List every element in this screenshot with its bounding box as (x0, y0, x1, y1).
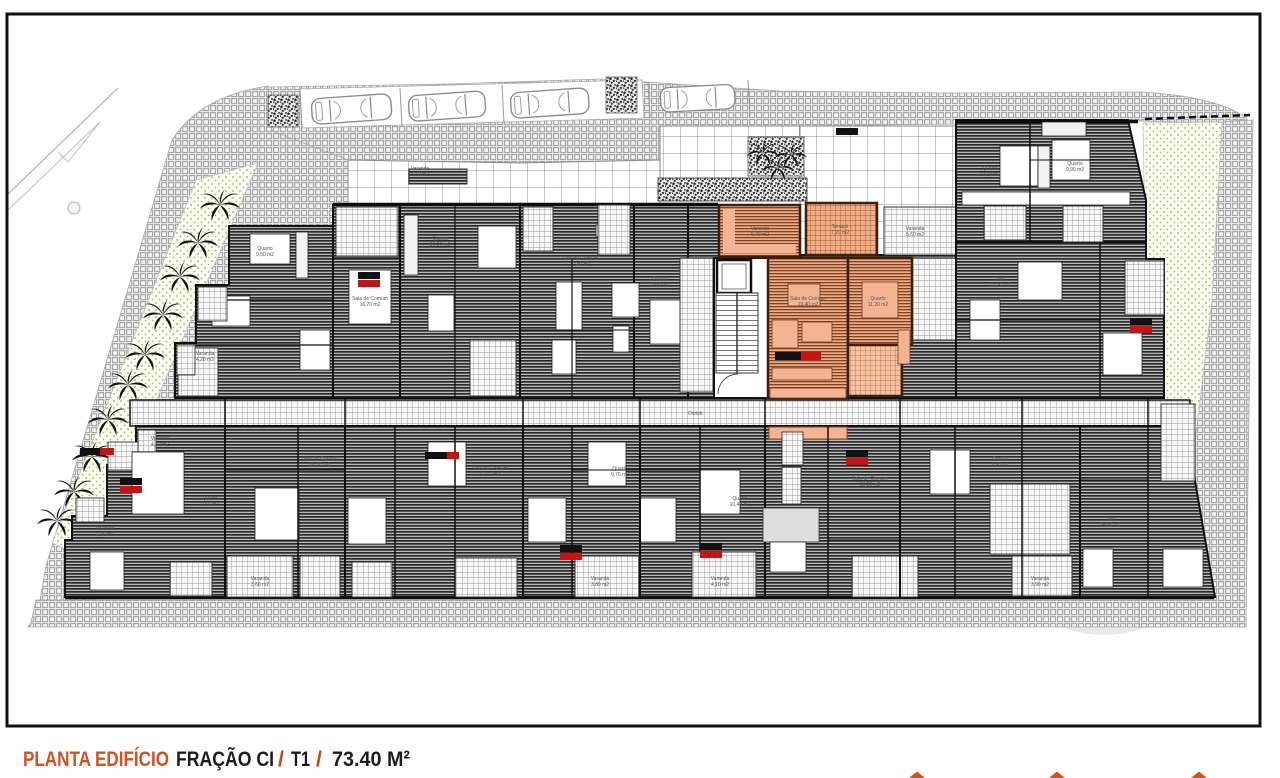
svg-text:4,20 m2: 4,20 m2 (196, 357, 214, 363)
svg-text:9,90 m2: 9,90 m2 (1066, 167, 1084, 173)
svg-text:10,20 m2: 10,20 m2 (430, 242, 451, 248)
svg-text:4,10 m2: 4,10 m2 (711, 582, 729, 588)
svg-text:16,20 m2: 16,20 m2 (310, 462, 331, 468)
svg-text:18,20 m2: 18,20 m2 (860, 482, 881, 488)
svg-text:T1: T1 (291, 747, 310, 771)
svg-text:9,50 m2: 9,50 m2 (256, 252, 274, 258)
svg-text:9,80 m2: 9,80 m2 (651, 282, 669, 288)
svg-text:17,10 m2: 17,10 m2 (480, 472, 501, 478)
svg-text:5,10 m2: 5,10 m2 (411, 172, 429, 178)
svg-text:3,60 m2: 3,60 m2 (251, 582, 269, 588)
svg-text:4,60 m2: 4,60 m2 (151, 442, 169, 448)
svg-text:11,20 m2: 11,20 m2 (868, 302, 889, 308)
svg-text:10,10 m2: 10,10 m2 (980, 172, 1001, 178)
svg-text:9,60 m2: 9,60 m2 (201, 502, 219, 508)
svg-text:19,40 m2: 19,40 m2 (798, 302, 819, 308)
svg-text:3,80 m2: 3,80 m2 (591, 582, 609, 588)
svg-text:15,30 m2: 15,30 m2 (990, 282, 1011, 288)
svg-text:4,30 m2: 4,30 m2 (96, 532, 114, 538)
svg-text:FRAÇÃO CI: FRAÇÃO CI (176, 746, 274, 771)
svg-text:/: / (278, 747, 284, 771)
svg-text:9,90 m2: 9,90 m2 (991, 462, 1009, 468)
svg-text:Distrib.: Distrib. (688, 411, 704, 417)
svg-text:9,70 m2: 9,70 m2 (611, 472, 629, 478)
svg-text:6,40 m2: 6,40 m2 (751, 232, 769, 238)
svg-text:/: / (316, 747, 322, 771)
svg-text:5,60 m2: 5,60 m2 (906, 232, 924, 238)
svg-text:PLANTA EDIFÍCIO: PLANTA EDIFÍCIO (23, 746, 169, 771)
svg-text:14,80 m2: 14,80 m2 (1100, 522, 1121, 528)
svg-text:3,90 m2: 3,90 m2 (1031, 582, 1049, 588)
svg-text:17,40 m2: 17,40 m2 (570, 262, 591, 268)
svg-text:16,70 m2: 16,70 m2 (360, 302, 381, 308)
svg-text:10,40 m2: 10,40 m2 (730, 502, 751, 508)
svg-text:7,20 m2: 7,20 m2 (831, 230, 849, 236)
svg-text:73.40 M²: 73.40 M² (332, 747, 410, 771)
